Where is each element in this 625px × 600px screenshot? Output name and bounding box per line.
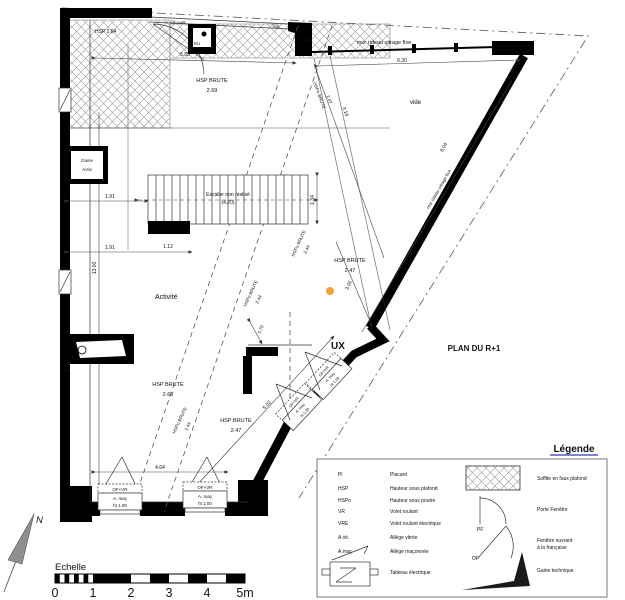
soffit-height-label: HSP 2.04 [95,29,117,35]
duct-eu-top-label: EU [194,41,200,46]
room-vide: vide [410,100,422,106]
legend-label-of: OF [472,556,479,562]
legend-abbr-vr: VR [338,509,345,515]
window-2-height: ht 1.00 [198,501,212,506]
legend-abbr-avit: A.vit. [338,535,349,541]
orange-marker-dot [326,287,334,295]
hatch-soffit [68,20,390,128]
legend-desc-pf: Porte Fenêtre [537,507,568,513]
window-2-allege: A. maç [198,494,213,499]
scale-bar: Echelle 0 1 2 3 4 5m [52,562,254,600]
scale-tick-4: 4 [204,586,211,600]
plan-title: PLAN DU R+1 [448,344,501,353]
dim-3-05: 3.05 [344,280,354,292]
legend-abbr-amac: A.maç [338,549,353,555]
dim-6-04: 6.04 [439,142,449,154]
legend-label-pf: PF [477,527,483,533]
floor-plan-canvas: Escalier non réalisé (4.20) 5.85 6.30 1.… [0,0,625,600]
soffit-legend-icon [466,466,520,490]
north-arrow: N [4,514,43,592]
legend-desc-pl: Placard [390,472,407,478]
window-top-fixe: fixe [272,24,280,29]
scale-tick-0: 0 [52,586,59,600]
window-2-type: OF+VR [197,485,213,490]
duct-eu-top: EU [188,24,216,54]
curtain-wall-top-label: mur rideau vitrage fixe [357,40,411,46]
dim-5-02: 5.02 [262,400,273,411]
legend-desc-avit: Allège vitrée [390,535,418,541]
dim-6-30: 6.30 [397,58,407,64]
gaine-label-1: Gaine [81,158,94,163]
legend-box: Légende Pl Placard HSP Hauteur sous plaf… [317,444,607,597]
legend-desc-tableau: Tableau électrique [390,570,431,576]
legend-desc-hsp: Hauteur sous plafond [390,486,438,492]
window-1-type: OF+VR [112,487,128,492]
window-1-allege: A. maç [113,496,128,501]
hsp-brute-top-value: 2.69 [207,88,218,94]
hspo-brute-diag-label: HSPo BRUTE [312,81,326,109]
hsp-brute-top-label: HSP BRUTE [196,78,228,84]
duct-eu-left: EU [62,334,134,373]
window-1-height: ht 1.00 [113,503,127,508]
dim-1-91-a: 1.91 [105,194,115,200]
stairs-label: Escalier non réalisé [206,192,250,198]
dim-13-00: 13.00 [92,262,98,275]
dim-4-64: 4.64 [155,465,165,471]
hsp-brute-mid-value: 2.47 [345,268,356,274]
dim-1-34: 1.34 [310,195,316,205]
legend-title: Légende [553,444,595,455]
window-of-vr-2: OF+VR A. maç ht 1.00 [183,457,227,512]
legend-desc-soffite: Soffite en faux plafond [537,476,587,482]
north-label: N [36,515,43,526]
gaine-activite-box: Gaine Activ [66,146,108,184]
legend-desc-hspo: Hauteur sous poutre [390,498,436,504]
legend-desc-vre: Volet roulant électrique [390,521,441,527]
scale-caption: Echelle [55,562,86,573]
legend-abbr-hsp: HSP [338,486,349,492]
legend-abbr-hspo: HSPo [338,498,351,504]
legend-desc-amac: Allège maçonnée [390,549,429,555]
hsp-brute-low-label: HSP BRUTE [152,382,184,388]
legend-abbr-vre: VRE [338,521,349,527]
hspo-244-a-value: 2.44 [303,244,311,255]
stairs: Escalier non réalisé (4.20) [138,175,318,234]
stairs-length: (4.20) [221,200,234,206]
legend-desc-vr: Volet roulant [390,509,418,515]
legend-desc-of-1: Fenêtre ouvrant [537,538,573,544]
scale-tick-5: 5m [236,586,253,600]
room-ux: UX [331,341,345,352]
dim-1-91-b: 1.91 [105,245,115,251]
room-activite: Activité [155,294,178,301]
duct-eu-left-label: EU [64,368,70,373]
scale-tick-3: 3 [166,586,173,600]
gaine-label-2: Activ [82,167,93,172]
hsp-brute-low-value: 2.69 [163,392,174,398]
hsp-brute-mid-label: HSP BRUTE [334,258,366,264]
window-of-vr-1: OF+VR A. maç ht 1.00 [98,457,142,514]
scale-tick-2: 2 [128,586,135,600]
legend-abbr-pl: Pl [338,472,342,478]
hspo-244-b-value: 2.44 [255,294,263,305]
legend-desc-of-2: à la française [537,545,567,551]
ep-label: EP [304,38,312,44]
hsp-brute-low2-label: HSP BRUTE [220,418,252,424]
dim-3-19: 3.19 [340,106,349,117]
hspo-244-c-value: 2.44 [184,421,192,432]
hsp-brute-low2-value: 2.47 [231,428,242,434]
dim-0-70: 0.70 [257,324,265,335]
scale-tick-1: 1 [90,586,97,600]
floor-plan: Escalier non réalisé (4.20) 5.85 6.30 1.… [0,0,625,600]
legend-desc-gaine: Gaine technique [537,568,574,574]
dim-1-12: 1.12 [163,244,173,250]
